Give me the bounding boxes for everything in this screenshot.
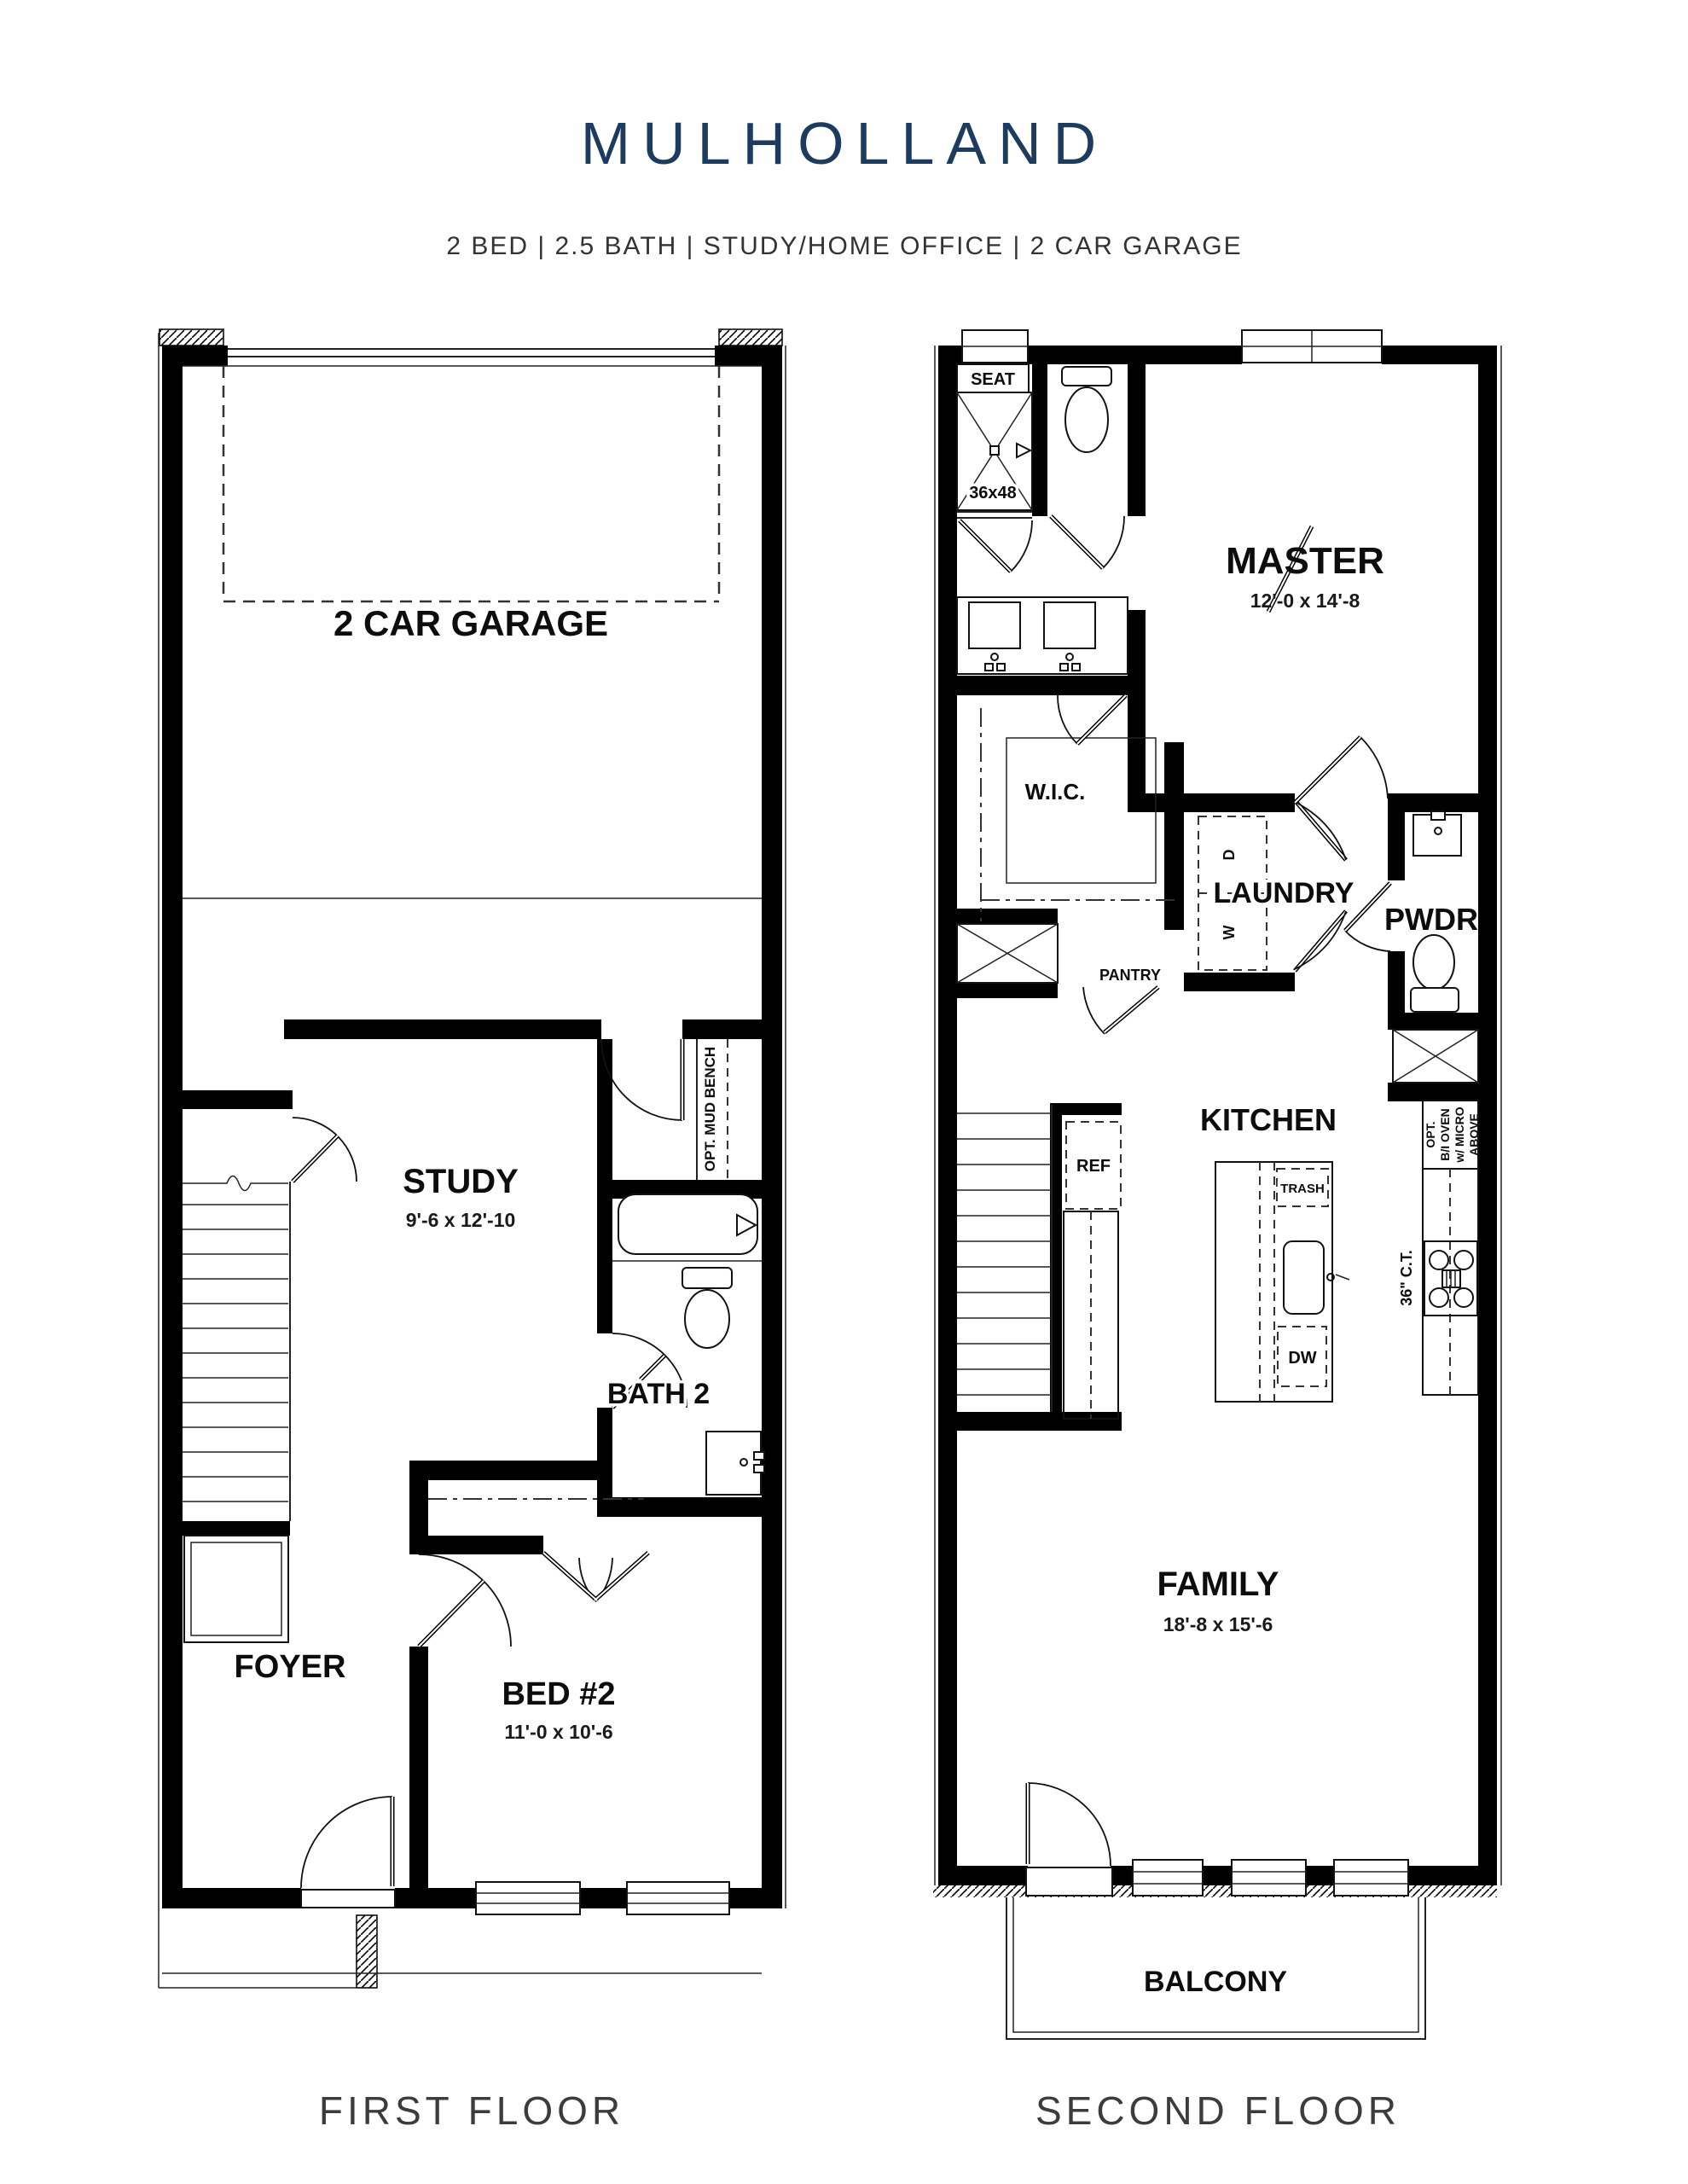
trash-label: TRASH: [1280, 1182, 1325, 1196]
wall-segment: [1388, 812, 1405, 880]
family-label: FAMILY: [1157, 1565, 1279, 1603]
sink-drain-icon: [1435, 828, 1441, 834]
family-dims: 18'-8 x 15'-6: [1163, 1613, 1273, 1635]
floor-plan-sheet: MULHOLLAND 2 BED | 2.5 BATH | STUDY/HOME…: [0, 0, 1688, 2184]
toilet-tank: [1062, 367, 1111, 386]
balcony-ledger-hatch: [933, 1885, 1497, 1897]
sink-handle-icon: [985, 664, 993, 671]
master-dims: 12'-0 x 14'-8: [1250, 590, 1360, 612]
wic-door-leaf-inner: [1077, 695, 1126, 744]
wall-segment: [938, 676, 1128, 695]
stair-break-line: [183, 1176, 288, 1191]
chase-x: [1393, 1030, 1478, 1083]
balcony-door-swing: [1028, 1783, 1111, 1866]
bath2-fixtures: [618, 1194, 764, 1495]
bath2-label: BATH 2: [607, 1378, 710, 1410]
wall-segment: [1184, 793, 1295, 812]
shower-area-door-swing: [1011, 520, 1032, 572]
wall-segment: [1388, 1013, 1497, 1030]
opt-oven-line4: ABOVE: [1467, 1113, 1481, 1156]
foundation-hatch: [719, 329, 782, 346]
sink-handle-icon: [1060, 664, 1068, 671]
wall-segment: [957, 983, 1058, 998]
balcony-label: BALCONY: [1144, 1966, 1287, 1998]
understair-closet-inner: [191, 1542, 281, 1635]
pantry-label: PANTRY: [1099, 967, 1161, 984]
foundation-hatch: [160, 329, 223, 346]
master-door-leaf-inner: [1295, 737, 1360, 803]
study-label: STUDY: [403, 1163, 519, 1200]
window: [1232, 1860, 1306, 1896]
window: [1334, 1860, 1408, 1896]
bed2-door-leaf-inner: [419, 1581, 484, 1647]
opt-oven-line1: OPT.: [1424, 1121, 1437, 1147]
pwdr-label: PWDR: [1384, 902, 1478, 937]
kitchen-sink: [1284, 1241, 1324, 1314]
wall-segment: [409, 1461, 599, 1480]
wall-segment: [682, 1019, 782, 1039]
wall-segment: [1128, 610, 1146, 812]
opt-oven-note: OPT. B/I OVEN w/ MICRO ABOVE: [1424, 1107, 1481, 1163]
wall-segment: [181, 1090, 293, 1109]
closet-door-leaves: [543, 1553, 648, 1600]
shower-area-door-leaf-inner: [960, 520, 1011, 572]
laundry-label: LAUNDRY: [1214, 877, 1354, 909]
wall-segment: [1388, 793, 1497, 812]
shower-drain: [990, 446, 999, 455]
floor-plan-drawing: MULHOLLAND 2 BED | 2.5 BATH | STUDY/HOME…: [0, 0, 1688, 2184]
sink-handle-icon: [1072, 664, 1080, 671]
front-door-sill: [301, 1890, 395, 1908]
burner: [1454, 1288, 1473, 1307]
balcony-door-sill: [1026, 1867, 1112, 1896]
wall-segment: [1388, 1083, 1497, 1101]
wic-door-swing: [1058, 695, 1077, 744]
wall-segment: [957, 909, 1058, 924]
wall-segment: [597, 1497, 782, 1517]
master-door-swing: [1360, 737, 1388, 799]
pantry-door: [1083, 987, 1158, 1034]
foyer-label: FOYER: [235, 1649, 346, 1685]
wall-segment: [1032, 364, 1047, 516]
shower-size-label: 36x48: [969, 484, 1017, 502]
garage-stall-outline: [223, 366, 719, 601]
wall-segment: [162, 346, 228, 366]
vanity-sink: [969, 602, 1020, 648]
sink-faucet-icon: [1431, 811, 1445, 820]
window: [1133, 1860, 1203, 1896]
sink-faucet-icon: [754, 1465, 764, 1472]
seat-label: SEAT: [971, 370, 1015, 389]
toilet-bowl: [1065, 387, 1108, 452]
toilet-tank: [1411, 988, 1459, 1012]
wic-label: W.I.C.: [1025, 779, 1086, 804]
wall-segment: [762, 346, 782, 1908]
wall-segment: [938, 1866, 1028, 1885]
understair-closet: [184, 1536, 288, 1642]
sink-faucet-icon: [991, 653, 998, 660]
mud-bench-note: OPT. MUD BENCH: [702, 1047, 718, 1171]
wall-segment: [162, 1888, 301, 1908]
sink-faucet-icon: [1066, 653, 1073, 660]
pwdr-vanity: [1413, 815, 1461, 856]
first-floor-lines: [159, 333, 786, 1988]
island-overhang-lines: [1260, 1162, 1274, 1402]
first-floor-caption: FIRST FLOOR: [319, 2088, 624, 2133]
first-floor-openings: [301, 1882, 729, 1914]
wall-segment: [1382, 346, 1497, 364]
stair-treads: [183, 1205, 288, 1501]
wall-segment: [938, 346, 962, 364]
wall-segment: [409, 1536, 543, 1554]
shower-head-icon: [1017, 444, 1030, 457]
stairs-up: [183, 1176, 288, 1502]
balcony-rail-inner: [1013, 1897, 1418, 2032]
toilet-room-door-leaf-inner: [1051, 516, 1103, 568]
kitchen-label: KITCHEN: [1200, 1102, 1337, 1137]
wall-segment: [715, 346, 782, 366]
wall-segment: [1128, 346, 1146, 516]
bed2-label: BED #2: [502, 1676, 615, 1712]
wall-segment: [1184, 973, 1295, 991]
closet-door-leaves-inner: [543, 1553, 648, 1600]
burner: [1454, 1251, 1473, 1269]
wall-segment: [957, 1412, 1122, 1431]
shower-curb: [957, 512, 1032, 518]
toilet-bowl: [685, 1290, 729, 1348]
study-dims: 9'-6 x 12'-10: [406, 1209, 516, 1231]
wall-segment: [162, 346, 183, 1908]
wall-segment: [183, 1521, 290, 1536]
toilet-bowl: [1413, 935, 1454, 990]
wall-segment: [1478, 346, 1497, 1885]
header: MULHOLLAND 2 BED | 2.5 BATH | STUDY/HOME…: [446, 110, 1242, 260]
chase-x: [957, 924, 1058, 983]
plan-subtitle: 2 BED | 2.5 BATH | STUDY/HOME OFFICE | 2…: [446, 232, 1242, 260]
window: [627, 1882, 729, 1914]
wall-segment: [284, 1019, 601, 1039]
garage-label: 2 CAR GARAGE: [334, 603, 608, 643]
sink-handle-icon: [997, 664, 1005, 671]
sink-faucet-icon: [754, 1452, 764, 1460]
wall-segment: [1050, 1103, 1122, 1115]
wall-segment: [1388, 951, 1405, 1021]
washer-label: W: [1221, 926, 1238, 940]
front-door-swing: [301, 1797, 392, 1888]
kitchen-details: [1064, 1101, 1478, 1419]
ref-label: REF: [1076, 1157, 1111, 1176]
plan-title: MULHOLLAND: [581, 110, 1108, 177]
wall-segment: [938, 346, 957, 1885]
wall-segment: [597, 1199, 612, 1333]
stoop-hatch: [357, 1915, 377, 1988]
sink-faucet-lever: [1336, 1275, 1349, 1280]
double-vanity: [957, 597, 1128, 674]
study-door-leaf-inner: [293, 1136, 338, 1182]
stair-treads: [957, 1113, 1052, 1395]
pantry-door-leaf-inner: [1105, 987, 1158, 1032]
burner: [1430, 1288, 1448, 1307]
wall-segment: [409, 1647, 428, 1888]
dryer-label: D: [1221, 850, 1238, 861]
bed2-dims: 11'-0 x 10'-6: [504, 1721, 612, 1743]
first-floor-plan: 2 CAR GARAGE STUDY 9'-6 x 12'-10 OPT. MU…: [159, 329, 786, 2133]
second-floor-caption: SECOND FLOOR: [1035, 2088, 1401, 2133]
cooktop-label: 36" C.T.: [1398, 1250, 1415, 1306]
second-floor-plan: SEAT 36x48 MASTER 12'-0 x 14'-8 W.I.C. D…: [933, 330, 1501, 2133]
garage-entry-door-swing: [601, 1039, 682, 1120]
window: [476, 1882, 580, 1914]
opt-oven-line3: w/ MICRO: [1453, 1107, 1466, 1163]
bath2-vanity: [706, 1432, 761, 1495]
toilet-room-door-swing: [1103, 516, 1124, 568]
cooktop-grill-lines: [1447, 1270, 1455, 1287]
burner: [1430, 1251, 1448, 1269]
dw-label: DW: [1288, 1349, 1316, 1368]
wall-segment: [1164, 742, 1184, 930]
toilet-tank: [682, 1268, 732, 1288]
master-label: MASTER: [1226, 540, 1384, 582]
vanity-sink: [1044, 602, 1095, 648]
pantry-door-swing: [1083, 987, 1105, 1034]
opt-oven-line2: B/I OVEN: [1438, 1108, 1452, 1160]
garage-door-panel: [228, 349, 715, 357]
